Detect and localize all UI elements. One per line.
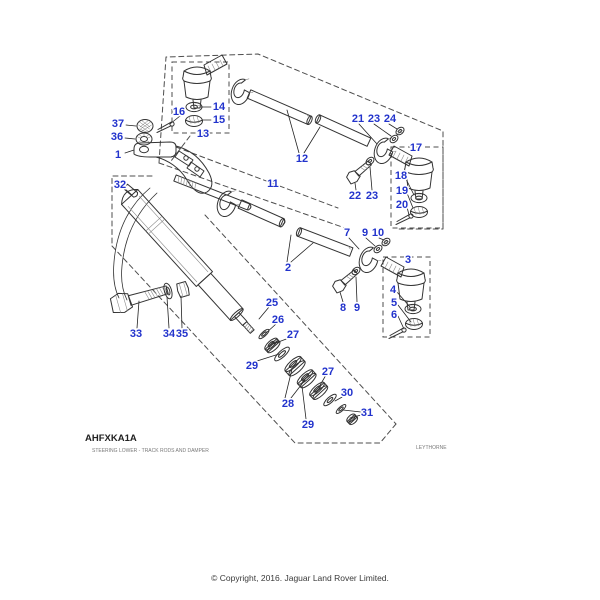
callout-2: 2 [285,262,291,274]
track-rod-tube-2a [238,200,286,228]
callout-3: 3 [405,254,411,266]
washer-30 [322,393,338,408]
callout-29: 29 [246,360,258,372]
callout-35: 35 [176,328,188,340]
callout-16: 16 [173,106,185,118]
callout-34: 34 [163,328,176,340]
callout-27: 27 [322,366,334,378]
callout-37: 37 [112,118,124,130]
callout-6: 6 [391,309,397,321]
callout-5: 5 [391,297,397,309]
damper-bushing-stack [258,328,359,426]
castellated-nut-15 [186,116,203,127]
parts-diagram-page: 1234567899101112131415161718192021222323… [0,0,600,600]
callout-10: 10 [372,227,384,239]
callout-27: 27 [287,329,299,341]
adjuster-clamp-13 [228,75,257,108]
castellated-nut-5 [406,319,423,330]
callout-14: 14 [213,101,226,113]
callout-21: 21 [352,113,364,125]
callout-36: 36 [111,131,123,143]
callout-23: 23 [368,113,380,125]
callout-7: 7 [344,227,350,239]
callout-13: 13 [197,128,209,140]
outline-lower-edge [159,163,345,228]
callout-30: 30 [341,387,353,399]
diagram-code: AHFXKA1A [85,433,137,444]
callout-26: 26 [272,314,284,326]
callout-11: 11 [267,178,279,190]
diagram-subtitle: STEERING LOWER - TRACK RODS AND DAMPER [92,448,209,454]
callout-9: 9 [354,302,360,314]
cotter-pin-20 [396,214,413,225]
damper-curve-b [122,193,157,300]
exploded-parts-diagram: 1234567899101112131415161718192021222323… [0,0,600,600]
callout-29: 29 [302,419,314,431]
callout-1: 1 [115,149,121,161]
nut-24 [394,126,405,137]
callout-19: 19 [396,185,408,197]
track-rod-tube-12a [247,90,313,125]
callout-33: 33 [130,328,142,340]
bush-28a [283,354,307,378]
clamp-hardware-lower [331,237,392,295]
washer-18 [411,193,427,202]
callout-23: 23 [366,190,378,202]
callout-4: 4 [390,284,397,296]
callout-25: 25 [266,297,278,309]
damper-curve-a [114,188,150,298]
callout-20: 20 [396,199,408,211]
nut-31 [345,413,359,426]
callout-32: 32 [114,179,126,191]
callout-31: 31 [361,407,373,419]
cup-29a [273,345,291,363]
callout-15: 15 [213,114,225,126]
callout-22: 22 [349,190,361,202]
adjuster-clamp-7 [356,243,385,276]
drop-arm [134,142,212,193]
callout-9: 9 [362,227,368,239]
callout-28: 28 [282,398,294,410]
callout-17: 17 [410,142,422,154]
plant-name: LEYTHORNE [416,445,447,451]
track-rod-11 [174,175,252,211]
copyright-notice: © Copyright, 2016. Jaguar Land Rover Lim… [211,573,389,583]
callout-24: 24 [384,113,397,125]
callout-18: 18 [395,170,407,182]
nut-35 [176,281,190,297]
bush-27a [263,336,282,354]
callout-12: 12 [296,153,308,165]
castellated-nut-37 [137,120,153,133]
bolt-8 [331,267,360,294]
callout-8: 8 [340,302,346,314]
washer-31a [335,403,347,415]
washer-26 [258,328,271,340]
washer-23b [365,156,376,167]
